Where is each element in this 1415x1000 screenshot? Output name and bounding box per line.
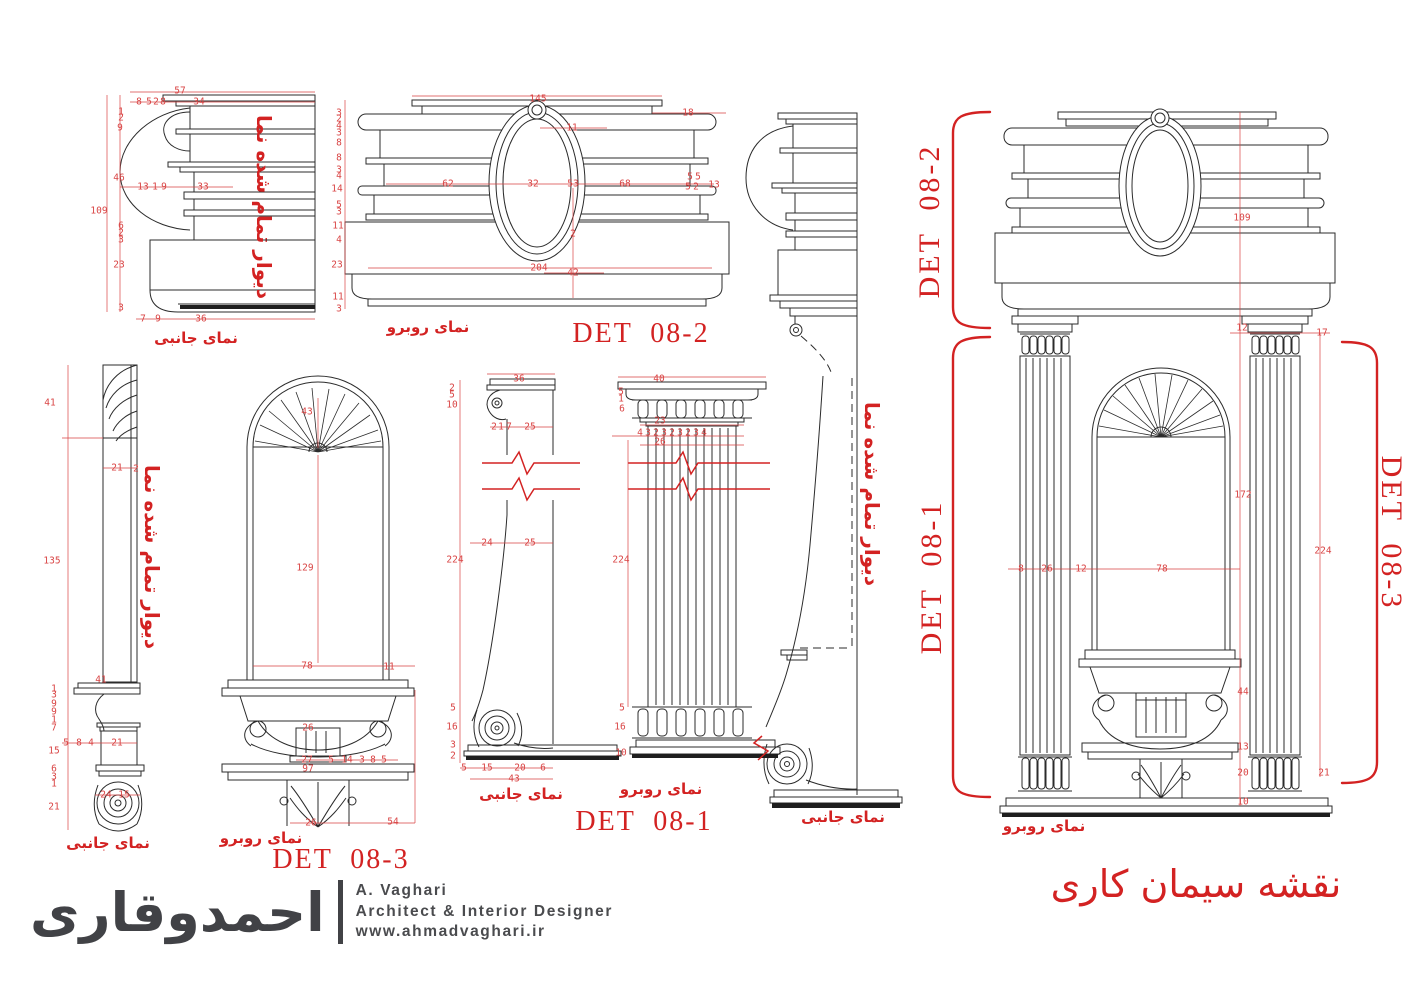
dim-label: 53	[567, 179, 578, 190]
dim-label: 5	[381, 755, 387, 766]
dim-label: 2	[491, 422, 497, 433]
dim-label: 12	[1236, 323, 1247, 334]
dim-label: 3	[645, 428, 651, 439]
dim-label: 1	[498, 422, 504, 433]
dim-label: 4	[336, 171, 342, 182]
dim-label: 10	[446, 400, 457, 411]
dim-label: 224	[446, 555, 463, 566]
dim-label: 224	[612, 555, 629, 566]
dim-label: 2	[153, 97, 159, 108]
dim-label: 14	[341, 755, 352, 766]
dim-label: 26	[1041, 564, 1052, 575]
detail-title: DET 08-1	[575, 806, 712, 838]
dim-label: 16	[446, 722, 457, 733]
dim-label: 3	[336, 304, 342, 315]
dim-label: 135	[43, 556, 60, 567]
dim-label: 13	[1237, 742, 1248, 753]
dim-label: 15	[118, 790, 129, 801]
dim-label: 15	[48, 746, 59, 757]
dim-label: 18	[682, 108, 693, 119]
dim-label: 8	[160, 97, 166, 108]
dim-label: 10	[1237, 797, 1248, 808]
view-caption: نمای جانبی	[154, 329, 238, 347]
dim-label: 36	[513, 374, 524, 385]
wall-note: دیوار تمام شده نما	[140, 465, 164, 649]
dim-label: 40	[653, 374, 664, 385]
dim-label: 5	[450, 703, 456, 714]
dim-label: 26	[305, 818, 316, 829]
dim-label: 145	[529, 94, 546, 105]
dim-label: 5	[619, 703, 625, 714]
dim-label: 10	[615, 748, 626, 759]
detail-title-rotated: DET 08-3	[1374, 456, 1408, 611]
dim-label: 4	[336, 235, 342, 246]
dim-label: 129	[296, 563, 313, 574]
dim-label: 43	[508, 774, 519, 785]
dim-label: 2	[570, 229, 576, 240]
dim-label: 21	[111, 463, 122, 474]
dim-label: 172	[1234, 490, 1251, 501]
dim-label: 3	[693, 428, 699, 439]
dim-label: 54	[387, 817, 398, 828]
dim-label: 23	[331, 260, 342, 271]
dim-label: 7	[506, 422, 512, 433]
dim-label: 4	[637, 428, 643, 439]
dim-label: 57	[174, 86, 185, 97]
sheet-title: نقشه سیمان کاری	[1051, 862, 1342, 906]
dim-label: 9	[161, 182, 167, 193]
logo-role: Architect & Interior Designer	[356, 902, 613, 923]
dim-label: 8	[76, 738, 82, 749]
dim-label: 5	[461, 763, 467, 774]
dim-label: 8	[336, 138, 342, 149]
view-caption: نمای روبرو	[1003, 817, 1086, 835]
dim-label: 78	[301, 661, 312, 672]
dim-label: 11	[332, 221, 343, 232]
dim-label: 1	[152, 182, 158, 193]
dim-label: 26	[302, 723, 313, 734]
dim-label: 41	[44, 398, 55, 409]
dim-label: 21	[1318, 768, 1329, 779]
wall-note: دیوار تمام شده نما	[252, 115, 276, 299]
dim-label: 109	[1233, 213, 1250, 224]
dim-label: 4	[88, 738, 94, 749]
view-caption: نمای روبرو	[620, 780, 703, 798]
dim-label: 8	[136, 97, 142, 108]
dim-label: 23	[654, 416, 665, 427]
dim-label: 41	[95, 675, 106, 686]
logo-divider	[338, 880, 343, 944]
annotation-layer: 57852834129461091319336232337936نمای جان…	[0, 0, 1415, 1000]
logo-text-block: A. Vaghari Architect & Interior Designer…	[356, 881, 613, 944]
dim-label: 204	[530, 263, 547, 274]
dim-label: 9	[155, 314, 161, 325]
dim-label: 23	[113, 260, 124, 271]
dim-label: 7	[140, 314, 146, 325]
dim-label: 32	[527, 179, 538, 190]
dim-label: 21	[48, 802, 59, 813]
dim-label: 24	[100, 790, 111, 801]
dim-label: 3	[359, 755, 365, 766]
detail-title-rotated: DET 08-1	[915, 500, 949, 655]
view-caption: نمای جانبی	[66, 834, 150, 852]
dim-label: 5	[146, 97, 152, 108]
dim-label: 14	[331, 184, 342, 195]
view-caption: نمای روبرو	[387, 318, 470, 336]
dim-label: 43	[301, 407, 312, 418]
dim-label: 5	[685, 182, 691, 193]
dim-label: 13	[708, 180, 719, 191]
detail-title-rotated: DET 08-2	[913, 144, 947, 299]
dim-label: 2	[669, 428, 675, 439]
dim-label: 42	[567, 268, 578, 279]
dim-label: 4	[701, 428, 707, 439]
dim-label: 5	[63, 738, 69, 749]
dim-label: 2	[133, 464, 139, 475]
dim-label: 78	[1156, 564, 1167, 575]
dim-label: 46	[113, 173, 124, 184]
dim-label: 2	[693, 182, 699, 193]
dim-label: 26	[654, 437, 665, 448]
dim-label: 2	[685, 428, 691, 439]
dim-label: 7	[51, 723, 57, 734]
dim-label: 33	[197, 182, 208, 193]
dim-label: 3	[450, 740, 456, 751]
dim-label: 5	[328, 755, 334, 766]
dim-label: 109	[90, 206, 107, 217]
dim-label: 20	[514, 763, 525, 774]
dim-label: 11	[383, 662, 394, 673]
view-caption: نمای جانبی	[479, 785, 563, 803]
dim-label: 12	[1075, 564, 1086, 575]
detail-title: DET 08-2	[572, 318, 709, 350]
dim-label: 3	[677, 428, 683, 439]
dim-label: 3	[118, 303, 124, 314]
dim-label: 97	[302, 764, 313, 775]
dim-label: 25	[524, 422, 535, 433]
dim-label: 15	[481, 763, 492, 774]
dim-label: 224	[1314, 546, 1331, 557]
wall-note: دیوار تمام شده نما	[860, 402, 884, 586]
dim-label: 8	[370, 755, 376, 766]
dim-label: 6	[540, 763, 546, 774]
logo-site: www.ahmadvaghari.ir	[356, 922, 613, 943]
dim-label: 11	[566, 123, 577, 134]
dim-label: 3	[336, 207, 342, 218]
dim-label: 44	[1237, 687, 1248, 698]
logo-name: A. Vaghari	[356, 881, 613, 902]
dim-label: 36	[195, 314, 206, 325]
dim-label: 25	[524, 538, 535, 549]
dim-label: 2	[450, 751, 456, 762]
dim-label: 6	[619, 404, 625, 415]
logo-calligraphy: احمدوقاری	[30, 881, 325, 944]
dim-label: 8	[1018, 564, 1024, 575]
dim-label: 11	[332, 292, 343, 303]
dim-label: 17	[1316, 328, 1327, 339]
dim-label: 24	[481, 538, 492, 549]
detail-title: DET 08-3	[272, 844, 409, 876]
view-caption: نمای جانبی	[801, 808, 885, 826]
dim-label: 3	[118, 235, 124, 246]
dim-label: 1	[51, 779, 57, 790]
logo: احمدوقاری A. Vaghari Architect & Interio…	[30, 880, 613, 944]
dim-label: 68	[619, 179, 630, 190]
dim-label: 62	[442, 179, 453, 190]
dim-label: 34	[193, 97, 204, 108]
dim-label: 16	[614, 722, 625, 733]
dim-label: 21	[111, 738, 122, 749]
dim-label: 20	[1237, 768, 1248, 779]
dim-label: 8	[336, 153, 342, 164]
dim-label: 13	[137, 182, 148, 193]
dim-label: 9	[117, 123, 123, 134]
